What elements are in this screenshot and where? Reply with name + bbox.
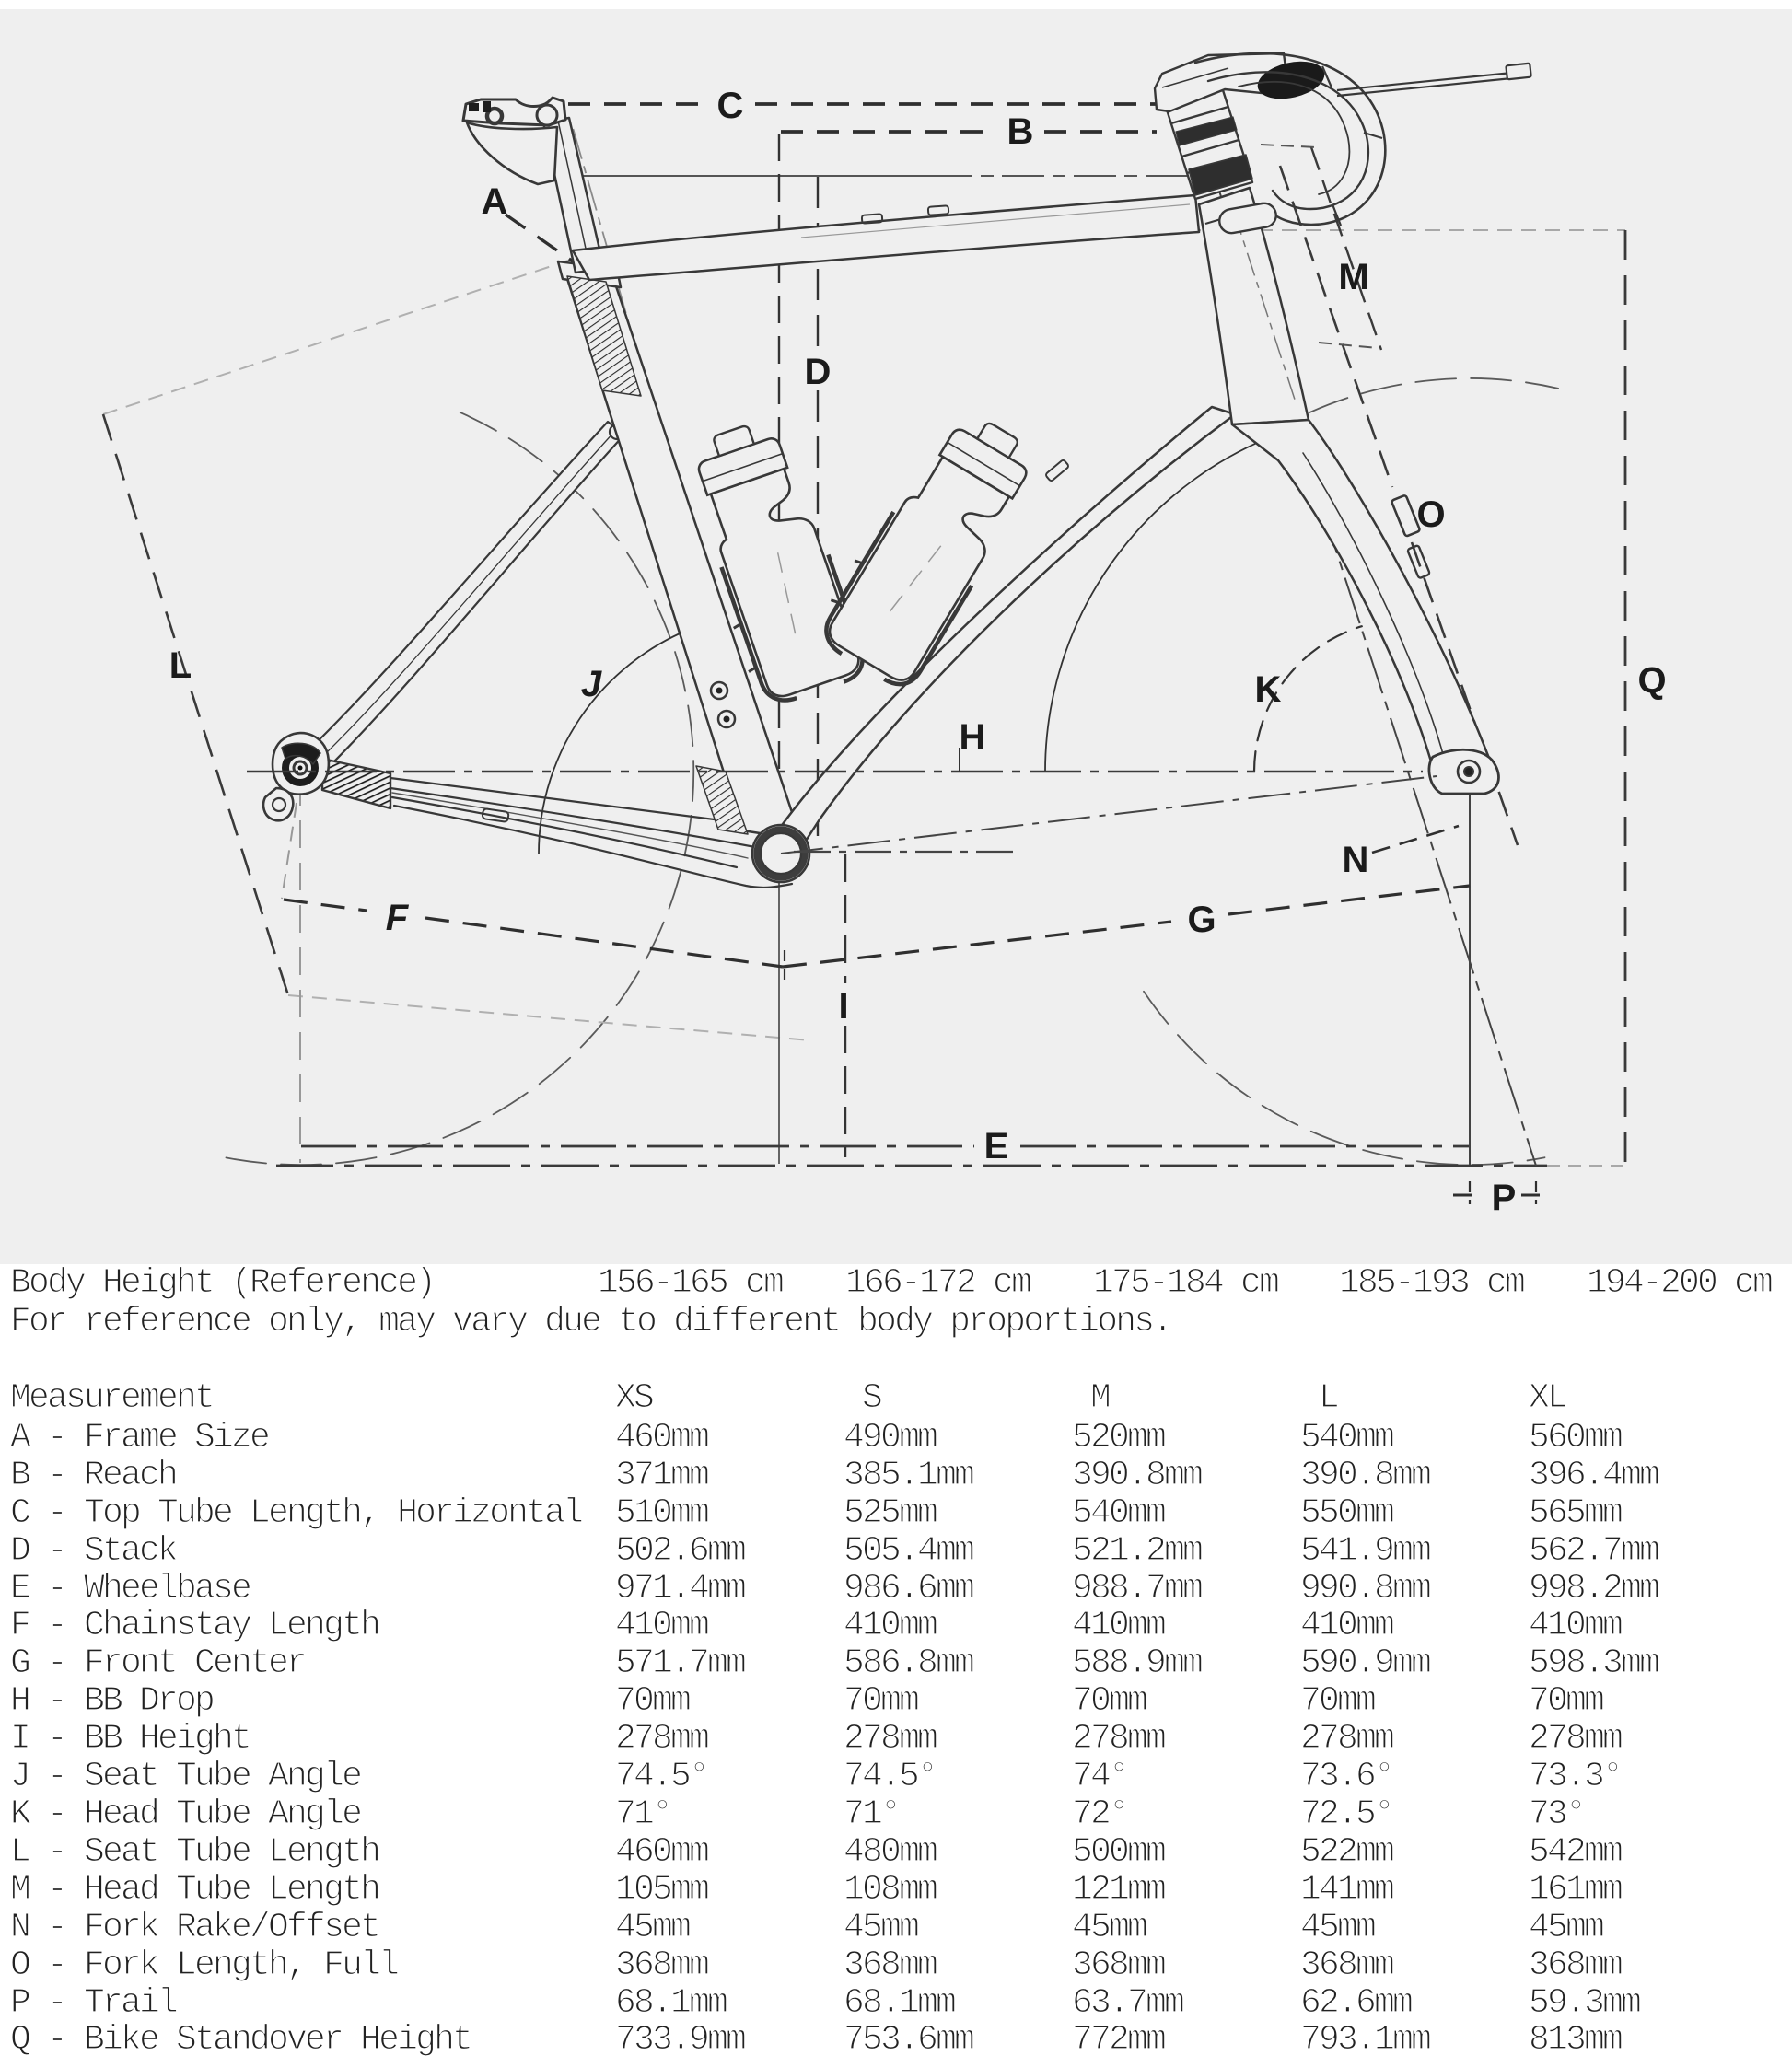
svg-text:N: N bbox=[1343, 840, 1369, 880]
svg-text:B: B bbox=[1007, 111, 1034, 152]
svg-text:I: I bbox=[838, 986, 848, 1027]
svg-text:C: C bbox=[717, 86, 744, 126]
svg-text:G: G bbox=[1187, 900, 1216, 940]
svg-text:O: O bbox=[1416, 494, 1445, 535]
svg-text:L: L bbox=[169, 645, 192, 686]
svg-text:F: F bbox=[386, 898, 410, 938]
svg-text:A: A bbox=[482, 181, 508, 222]
svg-text:E: E bbox=[984, 1126, 1009, 1167]
svg-text:J: J bbox=[581, 664, 602, 704]
svg-text:D: D bbox=[805, 352, 832, 392]
svg-text:Q: Q bbox=[1637, 660, 1666, 701]
svg-text:M: M bbox=[1338, 257, 1368, 297]
svg-text:P: P bbox=[1492, 1178, 1517, 1218]
svg-text:K: K bbox=[1255, 669, 1282, 710]
svg-text:H: H bbox=[960, 717, 986, 758]
